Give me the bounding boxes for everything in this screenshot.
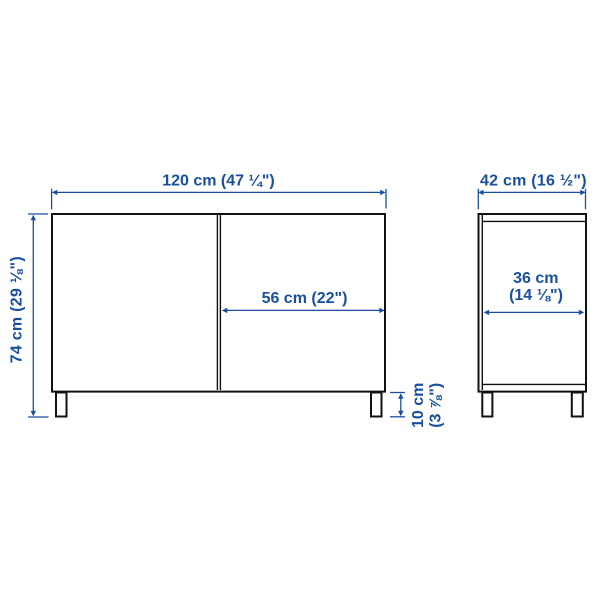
svg-text:74 cm (29 ⅛"): 74 cm (29 ⅛") bbox=[8, 256, 25, 363]
svg-text:(14 ⅛"): (14 ⅛") bbox=[509, 287, 563, 304]
svg-text:120 cm (47 ¼"): 120 cm (47 ¼") bbox=[162, 173, 275, 190]
svg-text:36 cm: 36 cm bbox=[513, 270, 558, 287]
svg-text:10 cm: 10 cm bbox=[410, 383, 427, 428]
svg-text:42 cm (16 ½"): 42 cm (16 ½") bbox=[480, 173, 587, 190]
svg-text:(3 ⅞"): (3 ⅞") bbox=[428, 383, 445, 428]
svg-text:56 cm (22"): 56 cm (22") bbox=[262, 290, 348, 307]
